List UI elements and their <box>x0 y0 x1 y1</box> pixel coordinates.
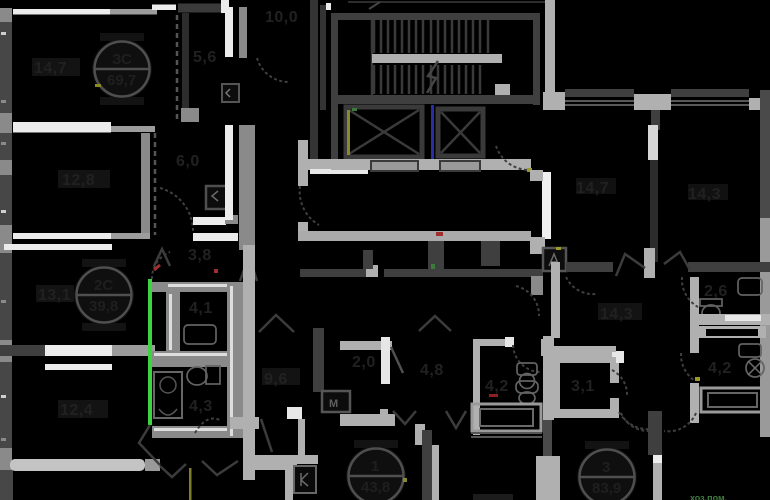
svg-text:4,2: 4,2 <box>485 378 509 395</box>
svg-text:2,0: 2,0 <box>352 354 376 371</box>
svg-text:13,1: 13,1 <box>38 287 71 304</box>
svg-text:12,4: 12,4 <box>60 402 93 419</box>
svg-text:хоз.пом.: хоз.пом. <box>690 493 727 500</box>
svg-text:43,8: 43,8 <box>361 479 390 496</box>
svg-text:14,7: 14,7 <box>576 180 609 197</box>
svg-text:14,3: 14,3 <box>688 186 721 203</box>
svg-text:4,2: 4,2 <box>708 360 732 377</box>
svg-text:14,3: 14,3 <box>600 306 633 323</box>
svg-text:4,8: 4,8 <box>420 362 444 379</box>
svg-text:39,8: 39,8 <box>89 298 118 315</box>
svg-text:10,0: 10,0 <box>265 9 298 26</box>
svg-text:4,3: 4,3 <box>189 398 213 415</box>
svg-text:83,9: 83,9 <box>592 480 621 497</box>
svg-text:9,6: 9,6 <box>264 371 288 388</box>
svg-text:69,7: 69,7 <box>107 72 136 89</box>
svg-text:3: 3 <box>602 459 610 476</box>
svg-text:3,1: 3,1 <box>571 378 595 395</box>
svg-text:1: 1 <box>371 458 379 475</box>
svg-text:14,7: 14,7 <box>34 60 67 77</box>
svg-text:6,0: 6,0 <box>176 153 200 170</box>
svg-text:2,6: 2,6 <box>704 283 728 300</box>
svg-text:4,1: 4,1 <box>189 300 213 317</box>
svg-text:2С: 2С <box>94 277 113 294</box>
svg-text:3,8: 3,8 <box>188 247 212 264</box>
svg-text:5,6: 5,6 <box>193 49 217 66</box>
svg-text:М: М <box>329 398 338 410</box>
svg-text:ЗС: ЗС <box>112 51 132 68</box>
svg-text:12,8: 12,8 <box>62 172 95 189</box>
